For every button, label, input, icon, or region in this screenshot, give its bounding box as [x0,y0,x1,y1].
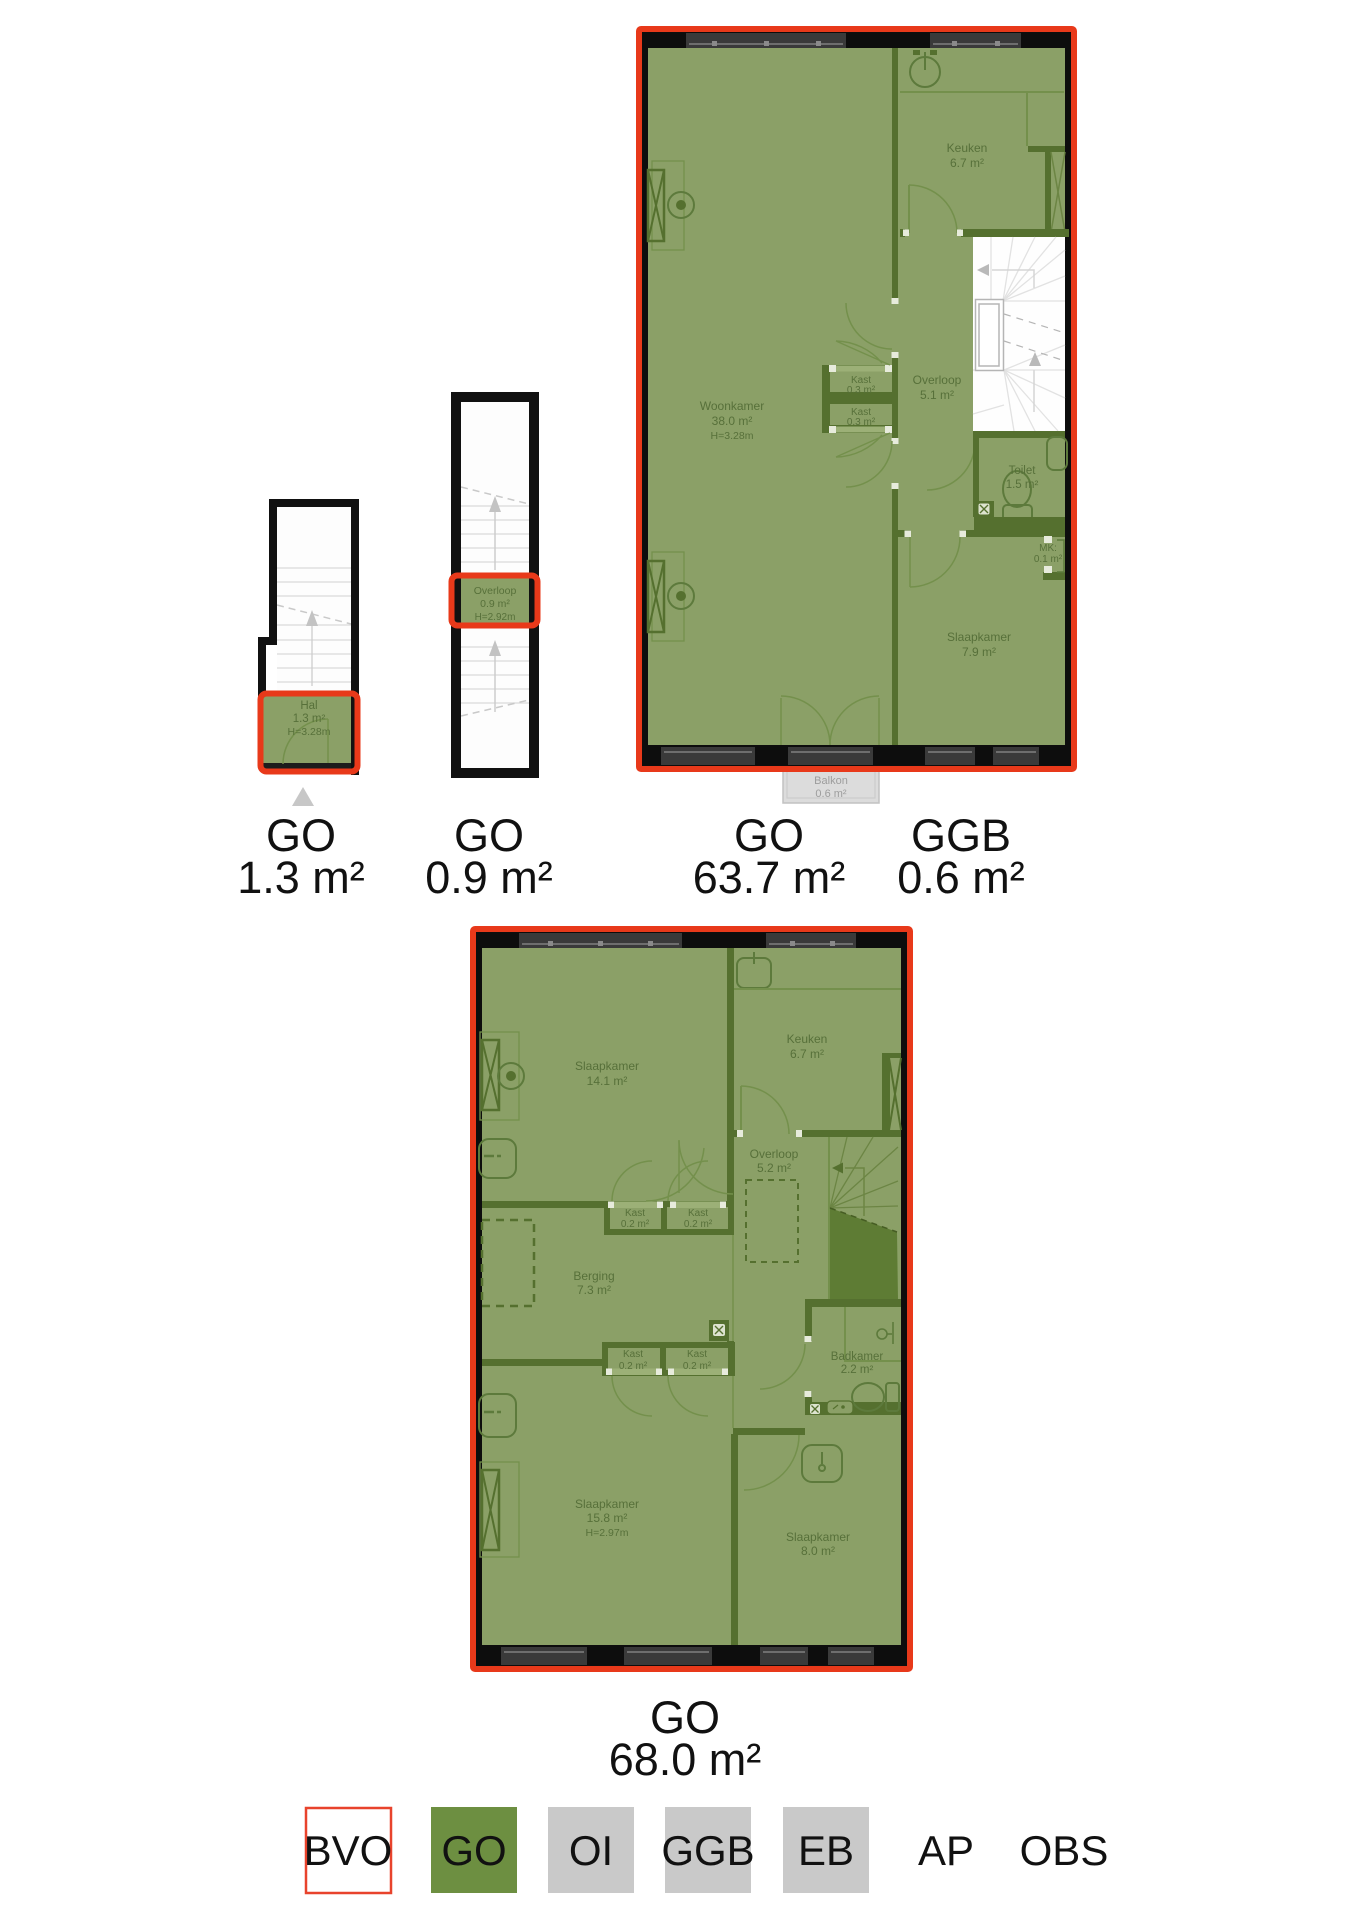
svg-text:Woonkamer: Woonkamer [700,399,764,413]
svg-text:GO: GO [441,1827,506,1874]
svg-text:MK:: MK: [1039,543,1057,554]
svg-text:7.9 m²: 7.9 m² [962,645,996,659]
svg-text:15.8 m²: 15.8 m² [587,1511,628,1525]
svg-text:Kast: Kast [623,1349,643,1360]
svg-text:5.2 m²: 5.2 m² [757,1161,791,1175]
svg-text:6.7 m²: 6.7 m² [790,1047,824,1061]
svg-text:Kast: Kast [625,1208,645,1219]
svg-text:0.9 m²: 0.9 m² [425,852,553,903]
svg-text:OBS: OBS [1020,1827,1109,1874]
svg-text:7.3 m²: 7.3 m² [577,1283,611,1297]
svg-text:68.0 m²: 68.0 m² [609,1734,762,1785]
svg-text:Berging: Berging [573,1269,614,1283]
svg-text:BVO: BVO [304,1827,393,1874]
svg-text:Slaapkamer: Slaapkamer [786,1530,850,1544]
svg-text:0.2 m²: 0.2 m² [619,1361,648,1372]
svg-text:AP: AP [918,1827,974,1874]
svg-text:Balkon: Balkon [814,775,848,787]
svg-text:Kast: Kast [687,1349,707,1360]
svg-text:H=2.92m: H=2.92m [475,612,516,623]
svg-text:63.7 m²: 63.7 m² [693,852,846,903]
svg-text:Overloop: Overloop [750,1147,799,1161]
svg-text:8.0 m²: 8.0 m² [801,1544,835,1558]
svg-text:0.2 m²: 0.2 m² [683,1361,712,1372]
svg-text:38.0 m²: 38.0 m² [712,414,753,428]
svg-text:1.3 m²: 1.3 m² [293,713,326,725]
svg-text:2.2 m²: 2.2 m² [841,1364,874,1376]
svg-text:Overloop: Overloop [474,585,517,597]
svg-text:Slaapkamer: Slaapkamer [575,1497,639,1511]
svg-text:0.6 m²: 0.6 m² [815,788,847,800]
svg-text:0.2 m²: 0.2 m² [621,1219,650,1230]
svg-text:H=3.28m: H=3.28m [288,726,331,738]
svg-text:5.1 m²: 5.1 m² [920,388,954,402]
svg-text:Slaapkamer: Slaapkamer [947,630,1011,644]
svg-text:6.7 m²: 6.7 m² [950,156,984,170]
svg-text:0.3 m²: 0.3 m² [847,385,876,396]
svg-text:0.3 m²: 0.3 m² [847,417,876,428]
svg-text:0.1 m²: 0.1 m² [1034,554,1063,565]
svg-text:EB: EB [798,1827,854,1874]
svg-text:GGB: GGB [661,1827,754,1874]
svg-text:14.1 m²: 14.1 m² [587,1074,628,1088]
svg-text:0.9 m²: 0.9 m² [480,598,510,610]
svg-text:H=2.97m: H=2.97m [586,1527,629,1539]
svg-text:OI: OI [569,1827,613,1874]
svg-text:Kast: Kast [688,1208,708,1219]
svg-text:Overloop: Overloop [913,373,962,387]
svg-text:Keuken: Keuken [947,141,988,155]
svg-text:1.3 m²: 1.3 m² [237,852,365,903]
svg-text:1.5 m²: 1.5 m² [1006,479,1039,491]
svg-text:Slaapkamer: Slaapkamer [575,1059,639,1073]
svg-text:Toilet: Toilet [1009,465,1037,477]
svg-text:Badkamer: Badkamer [831,1351,884,1363]
svg-text:0.2 m²: 0.2 m² [684,1219,713,1230]
svg-text:H=3.28m: H=3.28m [711,430,754,442]
svg-text:Keuken: Keuken [787,1032,828,1046]
svg-text:Hal: Hal [300,700,317,712]
svg-text:0.6 m²: 0.6 m² [897,852,1025,903]
